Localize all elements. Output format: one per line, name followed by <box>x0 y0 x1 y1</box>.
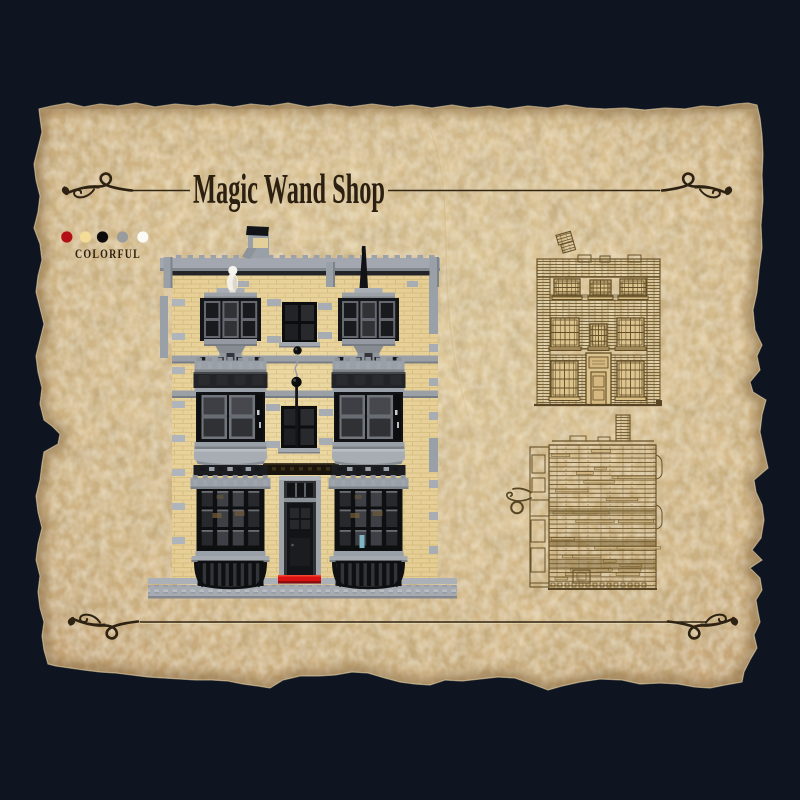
svg-text:COLORFUL: COLORFUL <box>75 246 141 261</box>
svg-text:Magic Wand Shop: Magic Wand Shop <box>193 167 385 213</box>
